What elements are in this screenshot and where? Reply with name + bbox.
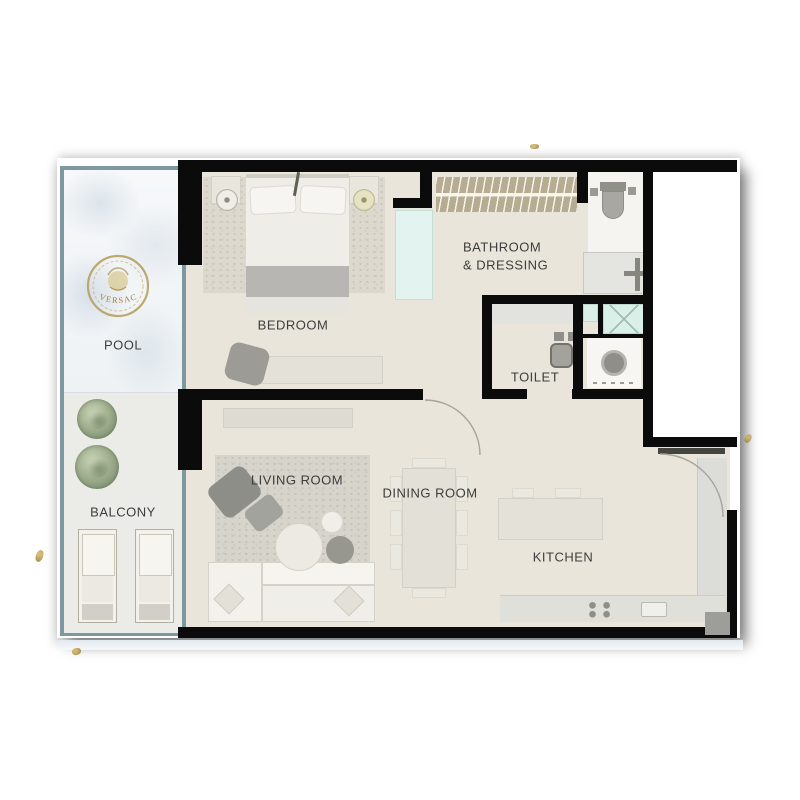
wall-toilet-east	[573, 304, 583, 399]
pillow	[299, 185, 346, 215]
dining-chair	[390, 510, 402, 536]
bed-decor-sprig	[293, 172, 300, 196]
bathtub	[583, 252, 648, 294]
side-table	[321, 511, 343, 533]
dining-chair	[456, 544, 468, 570]
wall-toilet-north	[482, 295, 648, 304]
washing-machine-icon	[601, 350, 627, 376]
laundry-niche	[587, 338, 641, 388]
coffee-table	[275, 523, 323, 571]
bathroom-label-line2: & DRESSING	[463, 258, 548, 273]
sink-icon	[641, 602, 667, 617]
lounger-seat	[82, 576, 113, 602]
wall-entry-top	[643, 437, 737, 447]
table-lamp-icon	[216, 189, 238, 211]
wall-bedroom-bathroom-stub	[393, 198, 432, 208]
vanity-accessory	[554, 332, 564, 341]
toilet-tank	[600, 182, 626, 191]
wall-corner-column	[705, 612, 730, 635]
gold-speck	[743, 433, 753, 444]
wall-toilet-south-left	[482, 389, 527, 399]
wall-wc-niche-stub	[577, 168, 588, 203]
sun-lounger	[78, 529, 117, 623]
gold-speck	[71, 647, 82, 656]
balcony-area: BALCONY	[64, 392, 182, 633]
kitchen-label: KITCHEN	[533, 550, 594, 565]
bed	[246, 174, 349, 310]
wall-toilet-south-right	[572, 389, 653, 399]
lounger-footrest	[139, 604, 170, 620]
toilet-bowl	[602, 191, 624, 219]
outdoor-strip: VERSACE POOL BALCONY	[60, 166, 186, 636]
kitchen-island	[498, 498, 603, 540]
plant-icon	[77, 399, 117, 439]
versace-medusa-logo: VERSACE	[83, 253, 153, 323]
lounger-backrest	[82, 534, 115, 576]
floor-plan: VERSACE POOL BALCONY	[57, 158, 740, 638]
shower-glass-door	[583, 304, 598, 322]
shower-stall	[603, 304, 645, 334]
toilet-vanity-counter	[492, 304, 573, 324]
wall-bedroom-south	[178, 389, 423, 400]
balcony-label: BALCONY	[90, 505, 156, 520]
wall-top	[178, 160, 737, 172]
bar-stool	[512, 488, 534, 498]
bed-foot-sheet	[246, 297, 349, 314]
pool-area: VERSACE POOL	[64, 170, 182, 392]
pillow	[249, 185, 296, 215]
pouf	[326, 536, 354, 564]
wall-shower-stub	[598, 304, 603, 334]
kitchen-counter	[500, 595, 725, 622]
hallway-console	[223, 408, 353, 428]
floor-plan-page: VERSACE POOL BALCONY	[0, 0, 800, 800]
kitchen-side-counter	[697, 458, 727, 615]
bedroom-label: BEDROOM	[258, 318, 329, 333]
plan-bottom-shadow-band	[57, 640, 743, 650]
sun-lounger	[135, 529, 174, 623]
dining-chair	[412, 588, 446, 598]
dining-room-label: DINING ROOM	[382, 486, 477, 501]
bedroom-console	[257, 356, 383, 384]
glass-partition	[395, 210, 433, 300]
wall-left-middle-pier	[178, 389, 202, 470]
dressing-wardrobe	[436, 177, 577, 212]
sofa-back	[262, 562, 375, 585]
bath-accessory	[628, 187, 636, 195]
pool-label: POOL	[104, 338, 142, 353]
wall-laundry-divider	[583, 334, 645, 338]
plant-icon	[75, 445, 119, 489]
entry-door-leaf	[658, 448, 725, 454]
washing-machine-controls	[593, 382, 633, 384]
stove-icon	[585, 600, 615, 619]
sofa	[208, 562, 375, 622]
toilet-label: TOILET	[511, 370, 559, 385]
gold-speck	[530, 144, 539, 149]
wall-left-upper-pier	[178, 160, 202, 265]
wall-bottom	[178, 627, 737, 638]
dining-chair	[456, 510, 468, 536]
lounger-footrest	[82, 604, 113, 620]
gold-speck	[34, 549, 45, 563]
table-lamp-icon	[353, 189, 375, 211]
dining-chair	[390, 544, 402, 570]
bar-stool	[555, 488, 581, 498]
bath-accessory	[590, 188, 598, 196]
dining-chair	[412, 458, 446, 468]
wall-toilet-west	[482, 295, 492, 399]
bed-blanket	[246, 266, 349, 297]
living-room-label: LIVING ROOM	[251, 473, 343, 488]
bathroom-label-line1: BATHROOM	[463, 240, 541, 255]
lounger-seat	[139, 576, 170, 602]
wash-basin	[550, 343, 573, 368]
lounger-backrest	[139, 534, 172, 576]
